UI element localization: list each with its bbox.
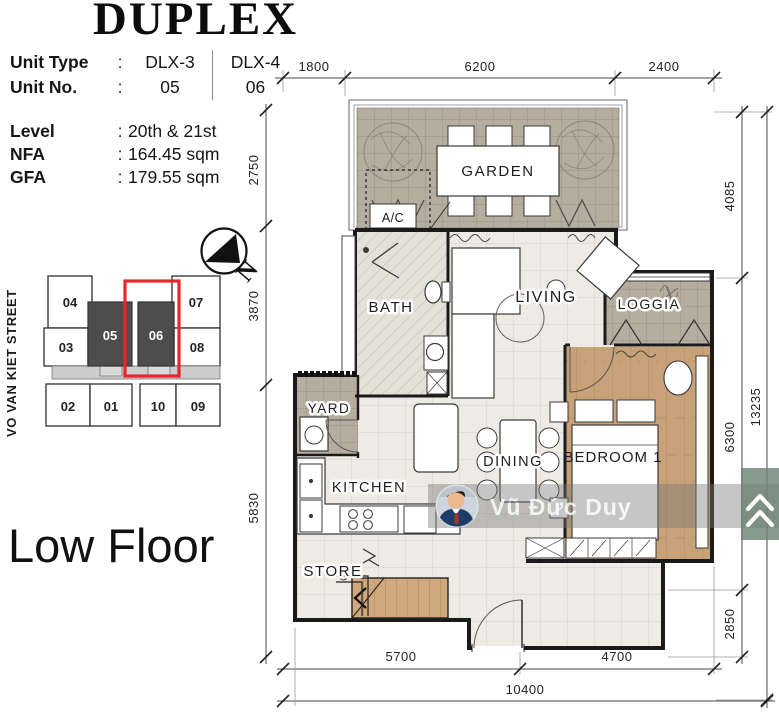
dim-right-0: 4085 [722,181,737,212]
dim-bottom-1: 4700 [602,649,633,664]
room-label-yard: YARD [308,401,351,416]
brand-logo-icon [741,468,779,540]
page-title: DUPLEX [88,0,303,46]
unit-no-label: Unit No. [10,75,112,100]
dim-left-1: 3870 [246,291,261,322]
room-label-ac: A/C [382,211,404,225]
unit-type-row: Unit Type : DLX-3 DLX-4 [10,50,305,75]
nfa-row: NFA : 164.45 sqm [10,143,270,166]
unit-type-dlx4: DLX-4 [212,50,298,75]
floorplan-page: GARDEN A/C BATH LIVING LOGGIA YARD DININ… [0,0,779,717]
keyplan-unit-01: 01 [104,399,118,414]
street-label: VO VAN KIET STREET [4,272,19,437]
gfa-row: GFA : 179.55 sqm [10,166,270,189]
gfa-value: 179.55 sqm [128,166,270,189]
nfa-label: NFA [10,143,112,166]
keyplan-unit-09: 09 [191,399,205,414]
gfa-label: GFA [10,166,112,189]
level-label: Level [10,120,112,143]
unit-type-dlx3: DLX-3 [128,50,212,75]
room-label-kitchen: KITCHEN [332,480,406,496]
room-label-loggia: LOGGIA [618,296,681,312]
keyplan-unit-05: 05 [103,328,117,343]
dim-right-overall: 13235 [748,388,763,427]
dim-right-1: 6300 [722,422,737,453]
colon: : [112,166,128,189]
floor-level-label: Low Floor [8,518,214,573]
room-label-garden: GARDEN [461,163,534,180]
dim-right-2: 2850 [722,609,737,640]
keyplan-unit-03: 03 [59,340,73,355]
level-row: Level : 20th & 21st [10,120,270,143]
room-label-bath: BATH [369,299,414,316]
level-value: 20th & 21st [128,120,270,143]
floor-plan-drawing: GARDEN A/C BATH LIVING LOGGIA YARD DININ… [0,0,779,717]
keyplan-unit-07: 07 [189,295,203,310]
keyplan-unit-02: 02 [61,399,75,414]
keyplan-unit-08: 08 [190,340,204,355]
unit-no-05: 05 [128,75,212,100]
keyplan-unit-04: 04 [63,295,78,310]
unit-table: Unit Type : DLX-3 DLX-4 Unit No. : 05 06 [10,50,305,100]
room-label-store: STORE [304,563,363,580]
room-label-bedroom1: BEDROOM 1 [563,449,662,466]
key-plan: 04 07 03 05 06 08 02 01 10 09 [44,276,220,426]
colon: : [112,50,128,75]
unit-type-label: Unit Type [10,50,112,75]
room-label-dining: DINING [483,454,543,470]
dim-bottom-overall: 10400 [506,682,545,697]
room-label-living: LIVING [515,289,576,306]
unit-no-06: 06 [212,75,298,100]
colon: : [112,143,128,166]
dim-left-2: 5830 [246,493,261,524]
nfa-value: 164.45 sqm [128,143,270,166]
dim-top-1: 6200 [465,59,496,74]
dim-top-2: 2400 [649,59,680,74]
colon: : [112,120,128,143]
colon: : [112,75,128,100]
unit-no-row: Unit No. : 05 06 [10,75,305,100]
watermark-name: Vũ Đức Duy [490,494,632,520]
keyplan-unit-10: 10 [151,399,165,414]
unit-info: Level : 20th & 21st NFA : 164.45 sqm GFA… [10,120,270,189]
keyplan-unit-06: 06 [149,328,163,343]
dim-bottom-0: 5700 [386,649,417,664]
